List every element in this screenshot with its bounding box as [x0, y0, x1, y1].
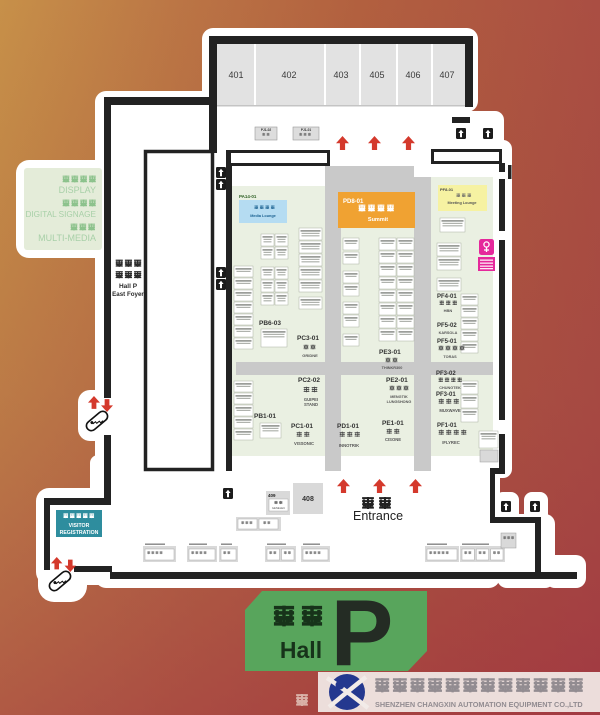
- svg-text:GENELEC: GENELEC: [272, 506, 285, 510]
- svg-text:407: 407: [439, 70, 454, 80]
- svg-text:INNOTRIK: INNOTRIK: [339, 443, 359, 448]
- svg-text:TORAS: TORAS: [443, 355, 457, 359]
- svg-text:401: 401: [228, 70, 243, 80]
- svg-text:408: 408: [302, 496, 314, 503]
- svg-text:SHENZHEN CHANGXIN AUTOMATION E: SHENZHEN CHANGXIN AUTOMATION EQUIPMENT C…: [375, 700, 583, 709]
- svg-text:Entrance: Entrance: [353, 509, 403, 523]
- svg-text:PD8-01: PD8-01: [343, 199, 364, 205]
- svg-text:East Foyer: East Foyer: [112, 291, 144, 298]
- svg-text:PF3-01: PF3-01: [436, 392, 456, 398]
- svg-text:PF5-02: PF5-02: [437, 323, 457, 329]
- svg-text:Summit: Summit: [368, 217, 388, 223]
- svg-text:PJ1-02: PJ1-02: [261, 128, 272, 132]
- svg-text:DIGITAL SIGNAGE: DIGITAL SIGNAGE: [25, 210, 96, 219]
- svg-text:IFLYREC: IFLYREC: [442, 440, 460, 445]
- svg-text:PC1-01: PC1-01: [291, 423, 313, 430]
- svg-text:Hall P: Hall P: [119, 283, 138, 290]
- svg-text:PF3-02: PF3-02: [436, 371, 456, 377]
- svg-text:P: P: [331, 580, 394, 685]
- svg-text:MENGTIK: MENGTIK: [390, 395, 408, 399]
- svg-text:403: 403: [333, 70, 348, 80]
- svg-text:STAND: STAND: [304, 402, 318, 407]
- svg-text:PF5-01: PF5-01: [437, 339, 457, 345]
- svg-text:THINKR300: THINKR300: [382, 366, 403, 370]
- svg-text:PD1-01: PD1-01: [337, 423, 359, 430]
- svg-text:PC3-01: PC3-01: [297, 335, 319, 342]
- svg-text:PB6-03: PB6-03: [259, 320, 281, 327]
- svg-text:VISSONIC: VISSONIC: [294, 441, 314, 446]
- svg-text:406: 406: [405, 70, 420, 80]
- svg-text:CISONE: CISONE: [385, 437, 401, 442]
- svg-text:PA14-01: PA14-01: [239, 194, 257, 199]
- svg-text:PE2-01: PE2-01: [386, 377, 408, 384]
- svg-text:Meeting Lounge: Meeting Lounge: [447, 201, 476, 205]
- svg-text:PF8-01: PF8-01: [440, 187, 454, 192]
- svg-text:PF4-01: PF4-01: [437, 294, 457, 300]
- svg-text:DISPLAY: DISPLAY: [59, 185, 96, 195]
- svg-text:VISITOR: VISITOR: [69, 523, 90, 529]
- svg-text:PB1-01: PB1-01: [254, 413, 276, 420]
- svg-text:402: 402: [281, 70, 296, 80]
- svg-text:405: 405: [369, 70, 384, 80]
- svg-text:PE1-01: PE1-01: [382, 420, 404, 427]
- svg-text:REGISTRATION: REGISTRATION: [60, 530, 99, 536]
- svg-text:HBN: HBN: [444, 308, 453, 313]
- svg-text:KARSOLA: KARSOLA: [439, 331, 458, 335]
- svg-text:PF1-01: PF1-01: [437, 423, 457, 429]
- svg-text:PE3-01: PE3-01: [379, 349, 401, 356]
- svg-text:CHUNGTEK: CHUNGTEK: [439, 386, 461, 390]
- svg-text:MULTI-MEDIA: MULTI-MEDIA: [38, 233, 96, 243]
- svg-text:PJ1-01: PJ1-01: [301, 128, 312, 132]
- svg-text:GRIDNE: GRIDNE: [302, 353, 318, 358]
- svg-text:Hall: Hall: [280, 637, 322, 663]
- svg-text:MUXWAVE: MUXWAVE: [439, 408, 461, 413]
- svg-text:Media Lounge: Media Lounge: [250, 214, 276, 218]
- svg-text:409: 409: [268, 493, 276, 498]
- svg-text:LUNGSHONG: LUNGSHONG: [387, 400, 412, 404]
- svg-text:PC2-02: PC2-02: [298, 377, 320, 384]
